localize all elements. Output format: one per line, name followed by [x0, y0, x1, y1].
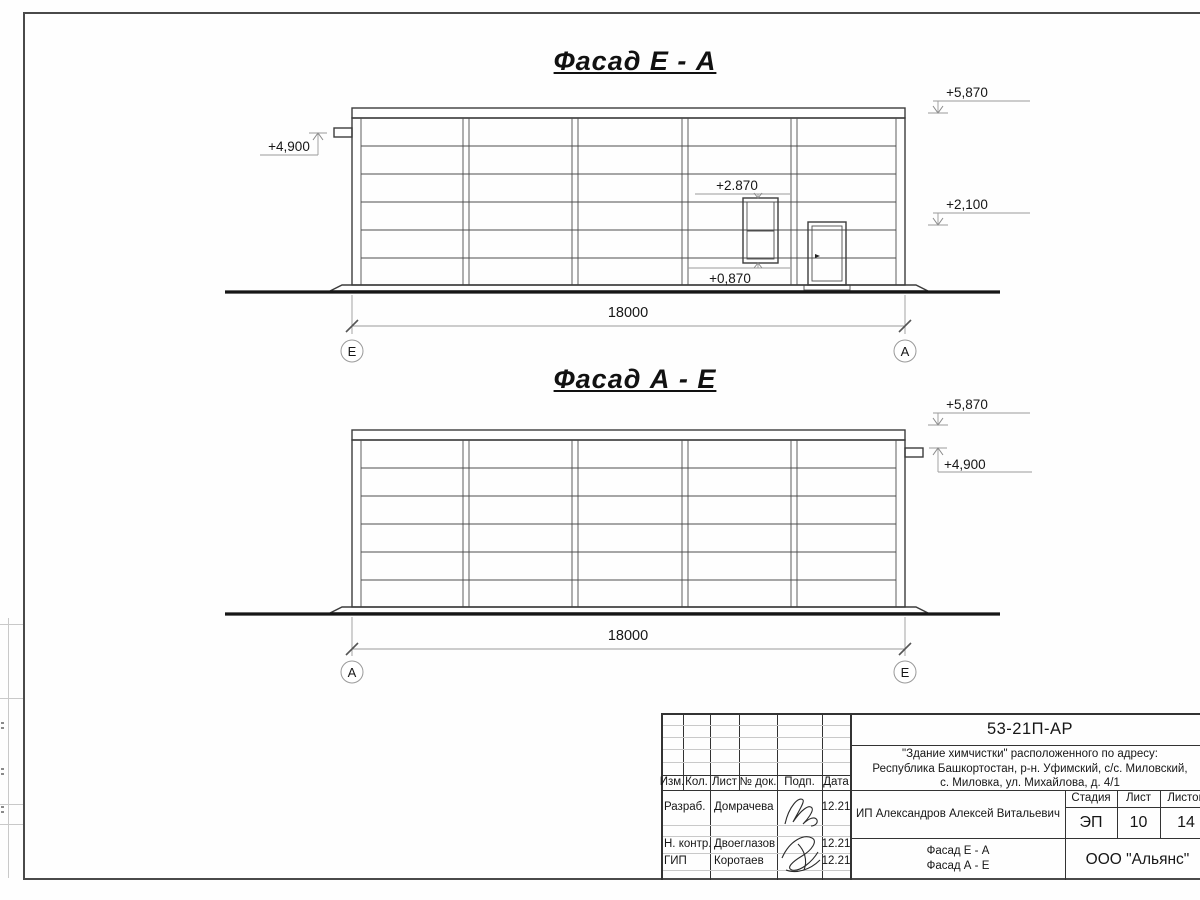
axis-letter-left: Е — [348, 344, 357, 359]
elevation-mark-2870: +2.870 — [716, 178, 758, 193]
facade-2-building — [225, 430, 1000, 614]
elevation-mark-5870-f2: +5,870 — [946, 397, 988, 412]
tb-row-date: 12.21 — [822, 790, 850, 825]
tb-stage-value: ЭП — [1065, 807, 1117, 838]
tb-revision-line — [663, 762, 850, 763]
facade-2-plinth — [330, 607, 928, 613]
elevation-mark-2100: +2,100 — [946, 197, 988, 212]
tb-row-name: Домрачева — [714, 790, 777, 825]
facade-1-window — [743, 198, 778, 263]
tb-project-line1: "Здание химчистки" расположенного по адр… — [825, 747, 1200, 762]
facade-2-dimension-text: 18000 — [608, 628, 648, 644]
elevation-mark-0870: +0,870 — [709, 271, 751, 286]
signature-nkontr-gip — [778, 830, 824, 878]
axis-letter-right-f2: Е — [901, 665, 910, 680]
axis-letter-left-f2: А — [348, 665, 357, 680]
tb-doc-code: 53-21П-АР — [851, 714, 1200, 744]
tb-row-date: 12.21 — [822, 836, 850, 853]
elevation-mark-4900: +4,900 — [268, 139, 310, 154]
facade-1-dimension: 18000 Е А — [341, 295, 916, 362]
facade-2-panel-lines — [361, 468, 896, 580]
tb-project-line2: Республика Башкортостан, р-н. Уфимский, … — [825, 762, 1200, 777]
facade-2-elevation-marks: +5,870 +4,900 — [928, 397, 1032, 472]
facade-2-scupper — [905, 448, 923, 457]
tb-drawing-name-line1: Фасад Е - А — [927, 844, 990, 859]
drawing-sheet: Фасад Е - А Фасад А - Е — [0, 0, 1200, 900]
tb-sheets-value: 14 — [1160, 807, 1200, 838]
tb-project-line3: с. Миловка, ул. Михайлова, д. 4/1 — [825, 776, 1200, 791]
title-block-left-border — [661, 713, 663, 880]
tb-drawing-name-line2: Фасад А - Е — [927, 859, 990, 874]
door-handle — [815, 254, 820, 258]
facade-1-door — [804, 222, 850, 290]
axis-letter-right: А — [901, 344, 910, 359]
tb-stage-label: Стадия — [1065, 790, 1117, 807]
tb-row-name: Двоеглазов — [714, 836, 777, 853]
facade-1-scupper — [334, 128, 352, 137]
tb-row-date: 12.21 — [822, 853, 850, 870]
facade-1-building — [225, 108, 1000, 292]
tb-col-podp: Подп. — [777, 775, 822, 790]
tb-revision-line — [663, 737, 850, 738]
facade-1-mullions — [463, 118, 797, 285]
tb-col-doc: № док. — [739, 775, 777, 790]
tb-drawing-name: Фасад Е - А Фасад А - Е — [851, 838, 1065, 880]
tb-row-role: Н. контр. — [664, 836, 710, 853]
tb-company: ООО "Альянс" — [1066, 838, 1200, 880]
facade-2-mullions — [463, 440, 797, 607]
tb-row-role: Разраб. — [664, 790, 710, 825]
tb-sheets-label: Листов — [1160, 790, 1200, 807]
door-threshold — [804, 285, 850, 290]
facade-2-dimension: 18000 А Е — [341, 617, 916, 683]
tb-sheet-label: Лист — [1117, 790, 1160, 807]
elevation-mark-4900-f2: +4,900 — [944, 457, 986, 472]
tb-vline — [710, 713, 711, 880]
signature-razrab — [779, 792, 823, 832]
tb-revision-line — [663, 749, 850, 750]
facade-1-dimension-text: 18000 — [608, 305, 648, 321]
tb-revision-line — [663, 725, 850, 726]
tb-row-role: ГИП — [664, 853, 710, 870]
facade-1-panel-lines — [361, 146, 896, 258]
facade-1-elevation-marks: +5,870 +2,100 +4,900 +2.870 +0,870 — [260, 85, 1030, 286]
tb-sheet-value: 10 — [1117, 807, 1160, 838]
tb-col-izm: Изм. — [661, 775, 683, 790]
tb-client: ИП Александров Алексей Витальевич — [851, 790, 1065, 838]
tb-project-address: "Здание химчистки" расположенного по адр… — [825, 747, 1200, 791]
tb-row-name: Коротаев — [714, 853, 777, 870]
tb-hline — [851, 745, 1200, 746]
tb-col-list: Лист — [710, 775, 739, 790]
elevation-mark-5870: +5,870 — [946, 85, 988, 100]
tb-col-kol: Кол. — [683, 775, 710, 790]
